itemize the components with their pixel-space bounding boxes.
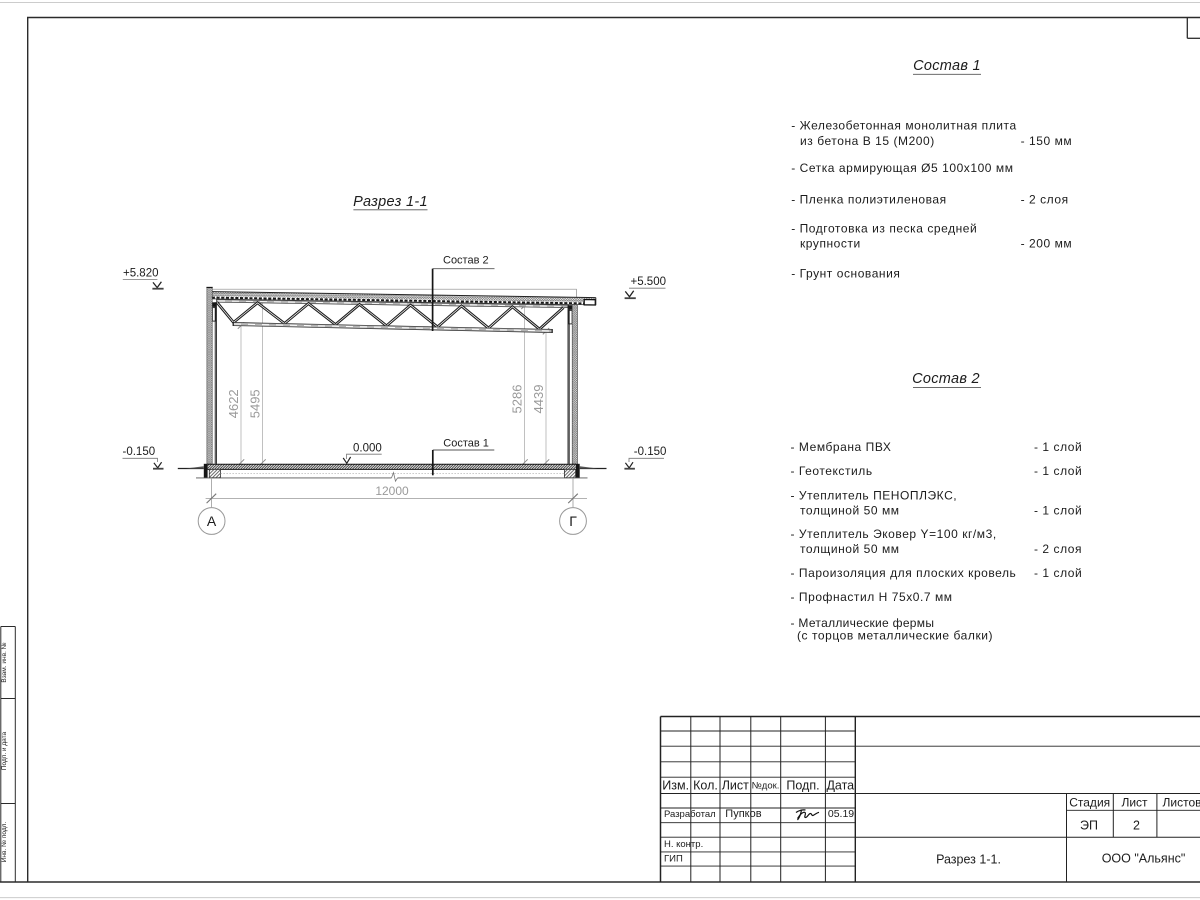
svg-text:-0.150: -0.150 [123, 446, 156, 458]
svg-text:12000: 12000 [375, 484, 409, 498]
svg-text:- Грунт основания: - Грунт основания [791, 267, 900, 281]
svg-text:Разрез 1-1: Разрез 1-1 [353, 194, 428, 210]
svg-text:№док.: №док. [752, 781, 780, 792]
svg-text:Состав 1: Состав 1 [443, 437, 489, 449]
svg-text:- Геотекстиль: - Геотекстиль [791, 464, 873, 478]
svg-text:Состав 2: Состав 2 [443, 255, 489, 267]
svg-text:0.000: 0.000 [353, 443, 382, 455]
svg-text:-0.150: -0.150 [634, 446, 667, 458]
svg-text:- 1 слой: - 1 слой [1034, 464, 1082, 478]
svg-text:2: 2 [1133, 819, 1140, 833]
svg-text:- 2 слоя: - 2 слоя [1034, 542, 1082, 556]
svg-text:Лист: Лист [1121, 796, 1148, 810]
svg-text:Подп.: Подп. [786, 779, 819, 793]
svg-text:(с торцов металлические балки): (с торцов металлические балки) [797, 628, 993, 642]
svg-text:Состав 2: Состав 2 [912, 371, 980, 387]
svg-text:- Пароизоляция для плоских кро: - Пароизоляция для плоских кровель [791, 566, 1017, 580]
svg-text:05.19: 05.19 [828, 808, 854, 820]
svg-text:из бетона В 15 (М200): из бетона В 15 (М200) [800, 134, 935, 148]
svg-text:- 1 слой: - 1 слой [1034, 566, 1082, 580]
svg-text:Разработал: Разработал [664, 809, 716, 820]
svg-text:- Утеплитель Эковер Y=100 кг/м: - Утеплитель Эковер Y=100 кг/м3, [791, 527, 997, 541]
svg-text:- Утеплитель ПЕНОПЛЭКС,: - Утеплитель ПЕНОПЛЭКС, [791, 488, 958, 502]
svg-text:- Профнастил Н 75х0.7 мм: - Профнастил Н 75х0.7 мм [791, 590, 953, 604]
svg-text:- 1 слой: - 1 слой [1034, 440, 1082, 454]
svg-text:Г: Г [569, 513, 577, 529]
svg-text:Инв. № подл.: Инв. № подл. [1, 822, 8, 863]
svg-text:ЭП: ЭП [1080, 819, 1098, 833]
svg-text:- 200 мм: - 200 мм [1021, 237, 1073, 251]
svg-text:Пупков: Пупков [725, 808, 761, 820]
svg-text:Состав 1: Состав 1 [913, 58, 981, 74]
svg-text:- Сетка армирующая Ø5 100х100: - Сетка армирующая Ø5 100х100 мм [791, 161, 1013, 175]
svg-text:Лист: Лист [722, 779, 749, 793]
svg-text:Н. контр.: Н. контр. [664, 839, 703, 850]
svg-text:Изм.: Изм. [662, 779, 689, 793]
svg-text:+5.500: +5.500 [631, 276, 667, 288]
svg-text:- Подготовка из песка средней: - Подготовка из песка средней [791, 222, 977, 236]
svg-text:крупности: крупности [800, 237, 861, 251]
svg-text:толщиной 50 мм: толщиной 50 мм [800, 542, 900, 556]
svg-text:4622: 4622 [226, 389, 241, 418]
svg-text:+5.820: +5.820 [123, 267, 159, 279]
svg-text:Разрез 1-1.: Разрез 1-1. [936, 852, 1001, 866]
svg-text:- Мембрана ПВХ: - Мембрана ПВХ [791, 440, 892, 454]
svg-text:5286: 5286 [509, 385, 524, 414]
svg-text:- Железобетонная монолитная п: - Железобетонная монолитная плита [791, 118, 1016, 132]
svg-text:Взам. инв. №: Взам. инв. № [1, 642, 8, 682]
svg-text:ООО "Альянс": ООО "Альянс" [1102, 851, 1186, 865]
svg-text:Листов: Листов [1163, 796, 1200, 810]
svg-text:- 1 слой: - 1 слой [1034, 503, 1082, 517]
svg-text:5495: 5495 [248, 389, 263, 418]
svg-text:4439: 4439 [531, 385, 546, 414]
svg-text:- 150 мм: - 150 мм [1021, 134, 1073, 148]
svg-text:Дата: Дата [826, 779, 854, 793]
svg-text:Подп. и дата: Подп. и дата [1, 731, 8, 770]
svg-text:толщиной 50 мм: толщиной 50 мм [800, 503, 900, 517]
svg-text:Кол.: Кол. [693, 779, 718, 793]
svg-text:А: А [207, 513, 217, 529]
svg-text:ГИП: ГИП [664, 853, 683, 864]
svg-text:Стадия: Стадия [1069, 796, 1110, 810]
svg-text:- Пленка полиэтиленовая: - Пленка полиэтиленовая [791, 192, 947, 206]
svg-text:- 2 слоя: - 2 слоя [1021, 192, 1069, 206]
